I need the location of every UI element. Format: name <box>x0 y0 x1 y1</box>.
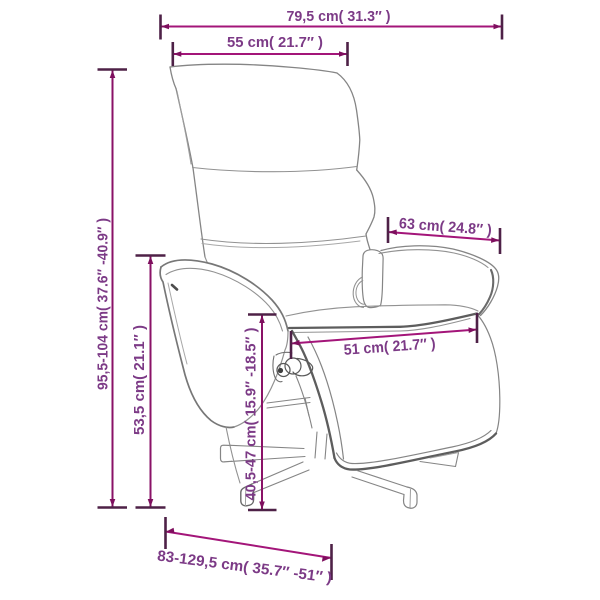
svg-text:40,5-47 cm( 15.9″ -18.5″ ): 40,5-47 cm( 15.9″ -18.5″ ) <box>243 327 260 500</box>
svg-text:79,5 cm( 31.3″ ): 79,5 cm( 31.3″ ) <box>287 8 391 25</box>
svg-text:53,5 cm( 21.1″ ): 53,5 cm( 21.1″ ) <box>131 325 148 435</box>
svg-text:55 cm( 21.7″ ): 55 cm( 21.7″ ) <box>227 34 323 51</box>
svg-text:95,5-104 cm( 37.6″ -40.9″ ): 95,5-104 cm( 37.6″ -40.9″ ) <box>95 218 112 390</box>
